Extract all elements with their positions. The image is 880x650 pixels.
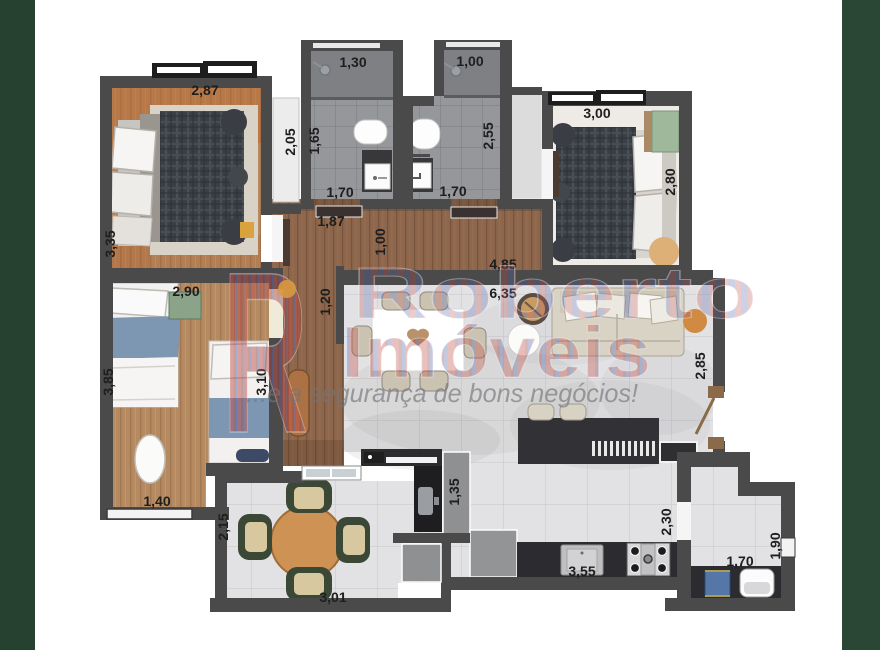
svg-text:1,00: 1,00 [372, 228, 388, 255]
svg-text:3,01: 3,01 [319, 589, 346, 605]
svg-text:2,90: 2,90 [172, 283, 199, 299]
svg-text:R: R [222, 224, 308, 481]
svg-text:...e a segurança de bons negóc: ...e a segurança de bons negócios! [246, 378, 638, 408]
svg-text:3,55: 3,55 [568, 563, 595, 579]
svg-text:1,90: 1,90 [767, 532, 783, 559]
svg-text:2,30: 2,30 [658, 508, 674, 535]
svg-text:1,65: 1,65 [306, 127, 322, 154]
svg-text:1,70: 1,70 [726, 553, 753, 569]
svg-text:2,85: 2,85 [692, 352, 708, 379]
svg-text:3,85: 3,85 [100, 368, 116, 395]
svg-text:1,40: 1,40 [143, 493, 170, 509]
svg-text:2,55: 2,55 [480, 122, 496, 149]
svg-text:3,00: 3,00 [583, 105, 610, 121]
svg-text:1,35: 1,35 [446, 478, 462, 505]
svg-text:2,05: 2,05 [282, 128, 298, 155]
svg-text:2,15: 2,15 [215, 513, 231, 540]
svg-text:1,20: 1,20 [317, 288, 333, 315]
svg-text:1,70: 1,70 [326, 184, 353, 200]
svg-text:2,80: 2,80 [662, 168, 678, 195]
svg-text:2,87: 2,87 [191, 82, 218, 98]
svg-text:1,00: 1,00 [456, 53, 483, 69]
svg-text:1,30: 1,30 [339, 54, 366, 70]
svg-text:3,35: 3,35 [102, 230, 118, 257]
svg-text:1,70: 1,70 [439, 183, 466, 199]
svg-text:1,87: 1,87 [317, 213, 344, 229]
